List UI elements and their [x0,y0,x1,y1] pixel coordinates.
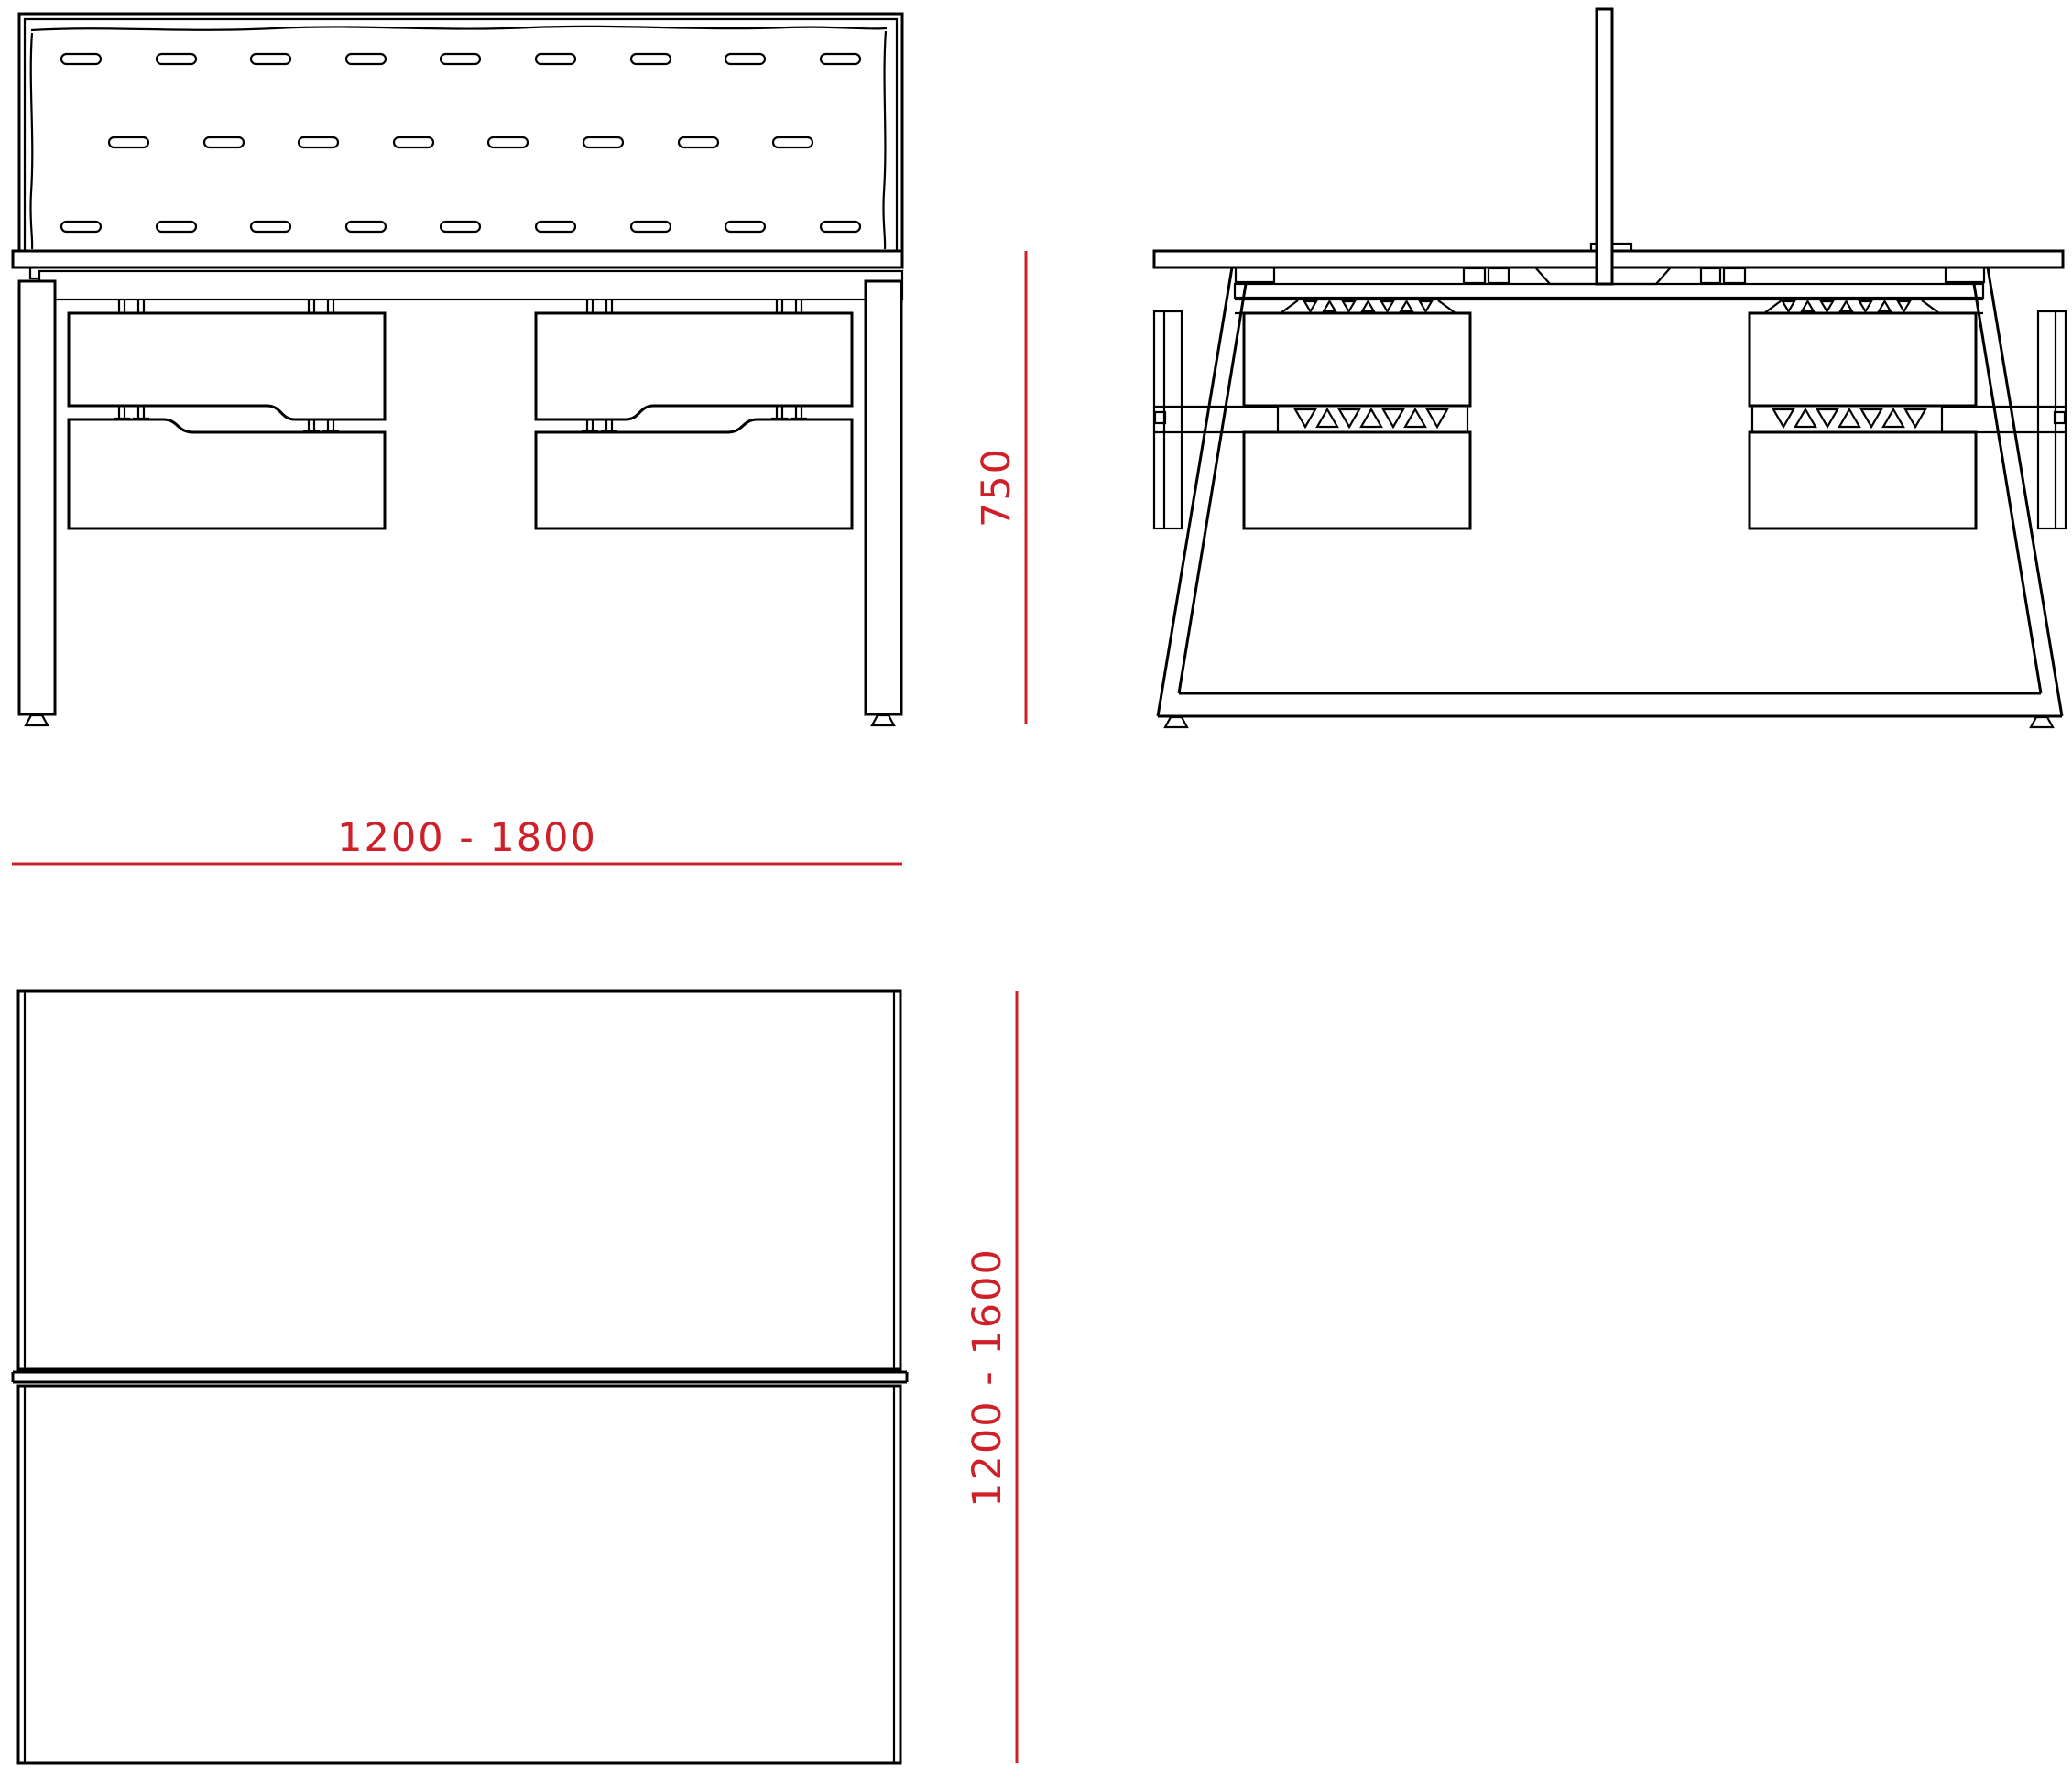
triangle-down-icon [1861,409,1881,427]
drawer-hangers [582,300,807,313]
center-divider-screen [1597,9,1612,284]
triangle-down-icon [1817,409,1838,427]
triangle-down-icon [1859,301,1871,311]
triangle-down-icon [1295,409,1315,427]
triangle-down-icon [1898,301,1910,311]
side-elevation-view [1154,9,2066,727]
triangle-up-icon [1795,409,1816,427]
leg-top-pad [1946,267,1984,282]
vent-slot [394,137,433,147]
vent-slot [536,222,575,232]
technical-drawing-sheet: 1200 - 1800 750 1200 - 1600 [0,0,2072,1786]
vent-slot [346,54,386,64]
vent-slot [204,137,244,147]
depth-dimension: 1200 - 1600 [965,991,1017,1763]
vent-slot [631,222,671,232]
vent-slot [631,54,671,64]
stretcher-rail [1235,284,1983,298]
vent-slot-row-2 [109,137,812,147]
triangle-down-icon [1821,301,1833,311]
leg-top-pad [1236,267,1274,282]
left-slant-leg [1158,267,1246,716]
triangle-up-icon [1317,409,1337,427]
vent-slot [61,54,101,64]
foot-glide [2031,717,2053,727]
desktop-clamp [1489,268,1509,283]
top-drawer-side [1244,313,1470,406]
triangle-up-icon [1840,301,1852,311]
bottom-drawer [69,419,385,528]
triangle-down-icon [1383,409,1403,427]
desktop [13,251,902,267]
fabric-edge-top [31,27,887,30]
fabric-edge-left [30,33,32,249]
bottom-drawer-side [1750,432,1976,528]
triangle-up-icon [1879,301,1891,311]
triangle-up-icon [1405,409,1425,427]
vent-slot [441,54,480,64]
right-slant-leg [1974,267,2062,716]
triangle-up-icon [1361,409,1381,427]
width-dimension-label: 1200 - 1800 [337,815,597,861]
apron-rail [39,271,902,299]
foot-glide [1165,717,1187,727]
triangle-up-icon [1883,409,1903,427]
vent-slot [346,222,386,232]
top-drawer-side [1750,313,1976,406]
vent-slot [488,137,528,147]
desktop-plan-lower [18,1386,900,1763]
vent-slot-row-1 [61,54,860,64]
vent-slot [251,222,290,232]
vent-slot [61,222,101,232]
height-dimension-label: 750 [974,447,1020,528]
top-plan-view [13,991,907,1763]
bottom-drawer-side [1244,432,1470,528]
vent-slot [157,54,196,64]
top-drawer [69,313,385,419]
triangle-down-icon [1773,409,1794,427]
floor-runner [1158,693,2062,716]
vent-slot-row-3 [61,222,860,232]
width-dimension: 1200 - 1800 [12,815,902,864]
desktop-clamp [1464,268,1485,283]
triangle-down-icon [1427,409,1447,427]
triangle-down-icon [1905,409,1925,427]
right-pedestal-side [1750,301,1976,528]
foot-glide [26,715,48,725]
triangle-up-icon [1401,301,1412,311]
vent-slot [773,137,812,147]
gap-strip-triangles [1295,409,1447,427]
depth-dimension-label: 1200 - 1600 [965,1247,1010,1508]
vent-slot [679,137,718,147]
divider-screen-plan [13,1372,907,1382]
drawer-hangers [114,300,339,313]
triangle-down-icon [1381,301,1393,311]
right-pedestal [536,300,852,528]
triangle-up-icon [1802,301,1814,311]
triangle-down-icon [1304,301,1316,311]
top-drawer [536,313,852,419]
screen-panel-frame [19,14,902,251]
foot-glide [872,715,894,725]
triangle-down-icon [1783,301,1794,311]
vent-slot [725,222,765,232]
height-dimension: 750 [974,251,1026,724]
triangle-up-icon [1839,409,1859,427]
desk-technical-drawing: 1200 - 1800 750 1200 - 1600 [0,0,2072,1786]
hanger-rail-triangles [1783,301,1910,311]
vent-slot [299,137,338,147]
left-pedestal-side [1244,301,1470,528]
left-pedestal [69,300,385,528]
desktop-clamp [1701,268,1720,283]
front-elevation-view [13,14,902,725]
vent-slot [536,54,575,64]
triangle-down-icon [1339,409,1359,427]
hanger-rail-triangles [1304,301,1432,311]
vent-slot [821,54,860,64]
fabric-edge-right [883,31,886,249]
bottom-drawer [536,419,852,528]
triangle-up-icon [1362,301,1374,311]
gap-strip-triangles [1773,409,1925,427]
vent-slot [583,137,623,147]
screen-edge-strip [2038,311,2066,528]
triangle-down-icon [1343,301,1355,311]
vent-slot [109,137,148,147]
screen-edge-strip [1154,311,1182,528]
triangle-down-icon [1420,301,1432,311]
vent-slot [725,54,765,64]
desktop-plan-upper [18,991,900,1369]
vent-slot [821,222,860,232]
desktop-edge-lines [25,991,894,1763]
desktop-clamp [1724,268,1745,283]
left-leg [19,281,55,714]
triangle-up-icon [1324,301,1336,311]
vent-slot [157,222,196,232]
vent-slot [251,54,290,64]
apron-step [30,267,39,278]
vent-slot [441,222,480,232]
right-leg [866,281,901,714]
